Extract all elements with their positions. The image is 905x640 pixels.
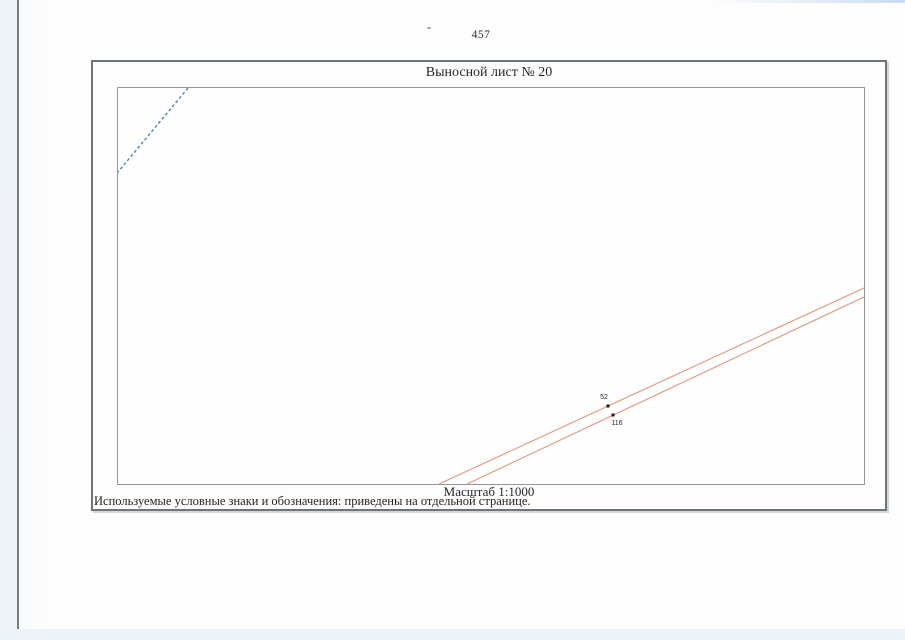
page-number: 457 <box>441 29 521 41</box>
scanned-document-canvas: 457 Выносной лист № 20 52 116 <box>0 0 905 640</box>
survey-point-52-label: 52 <box>600 394 608 401</box>
sheet-frame: Выносной лист № 20 52 116 Масш <box>91 60 887 511</box>
scan-speck <box>427 27 431 29</box>
parcel-line-lower <box>467 297 864 484</box>
dashed-boundary-line <box>118 88 188 172</box>
survey-point-52-marker <box>607 405 610 408</box>
map-svg: 52 116 <box>118 88 864 484</box>
parcel-line-upper <box>439 288 864 484</box>
survey-point-116-label: 116 <box>611 420 622 427</box>
survey-point-116-marker <box>612 414 615 417</box>
scan-edge-artifact <box>715 0 905 3</box>
legend-footnote: Используемые условные знаки и обозначени… <box>94 494 854 509</box>
document-page: 457 Выносной лист № 20 52 116 <box>17 0 905 629</box>
map-drawing-area: 52 116 <box>117 87 865 485</box>
sheet-title: Выносной лист № 20 <box>93 65 885 81</box>
